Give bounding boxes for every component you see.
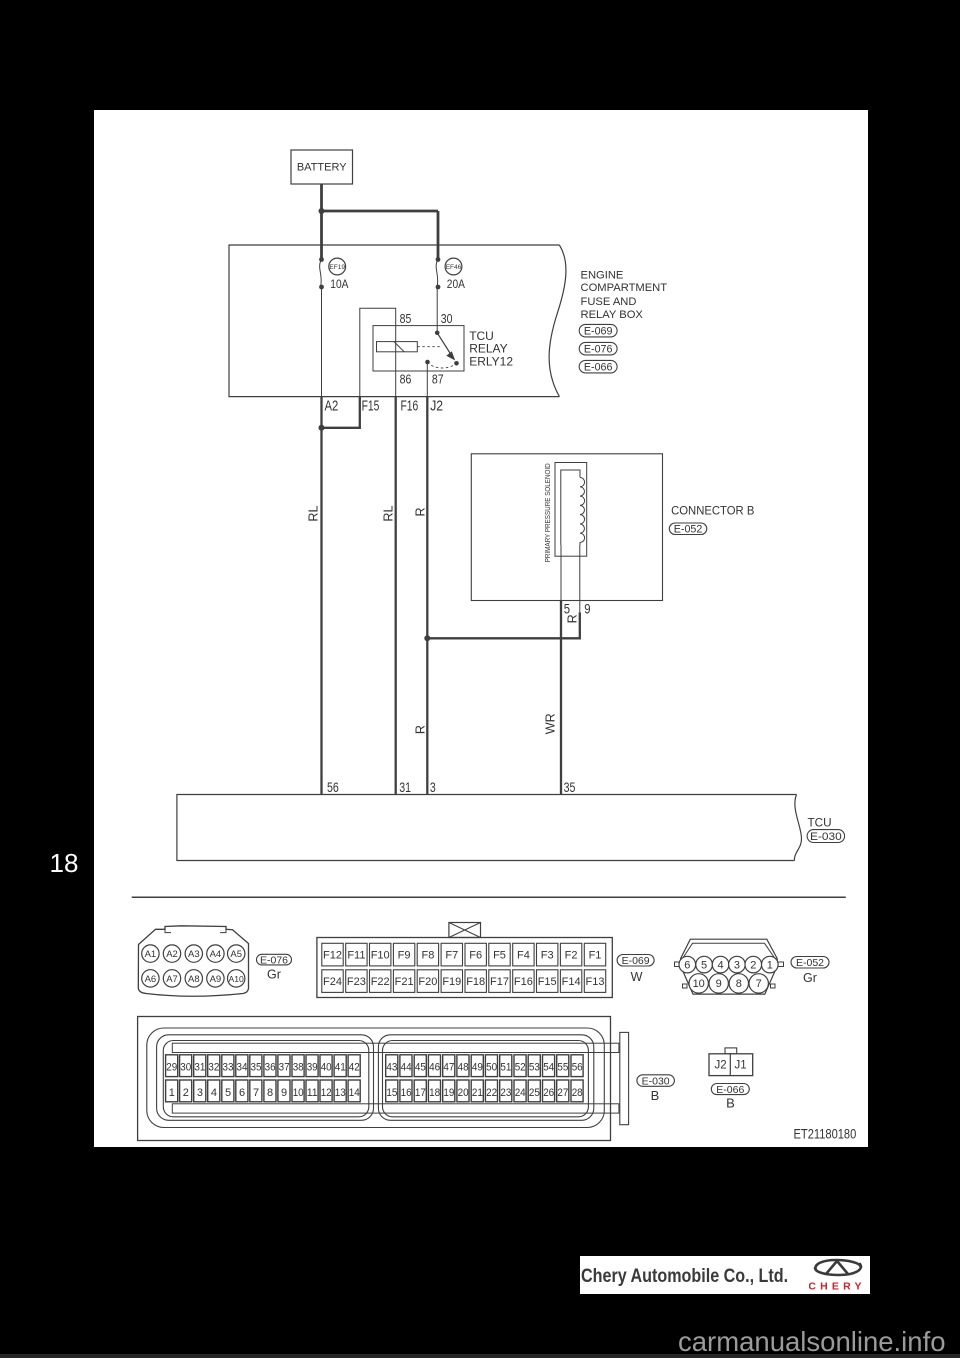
svg-text:29: 29 [166,1062,177,1074]
svg-text:E-030: E-030 [642,1075,670,1087]
svg-text:56: 56 [327,780,339,795]
svg-text:J2: J2 [430,398,443,414]
svg-text:39: 39 [307,1062,318,1074]
svg-text:E-066: E-066 [584,362,613,374]
svg-text:A9: A9 [210,974,222,985]
svg-text:54: 54 [543,1062,554,1074]
svg-text:9: 9 [716,978,722,990]
svg-text:E-052: E-052 [674,524,703,536]
svg-text:4: 4 [211,1087,217,1099]
svg-text:31: 31 [194,1062,205,1074]
svg-text:25: 25 [529,1087,540,1099]
svg-text:F13: F13 [586,976,605,988]
svg-text:28: 28 [572,1087,583,1099]
svg-text:50: 50 [486,1062,497,1074]
svg-text:F1: F1 [589,950,602,962]
svg-text:EF46: EF46 [446,264,462,271]
svg-text:FUSE AND: FUSE AND [581,296,637,308]
svg-text:55: 55 [557,1062,568,1074]
svg-text:45: 45 [415,1062,426,1074]
svg-text:F9: F9 [398,950,411,962]
svg-text:5: 5 [225,1087,231,1099]
svg-text:E-069: E-069 [584,326,613,338]
svg-text:F5: F5 [493,950,506,962]
svg-text:E-076: E-076 [260,954,288,966]
svg-text:R: R [413,507,427,516]
svg-text:Gr: Gr [803,971,817,985]
svg-text:6: 6 [684,959,690,971]
svg-text:34: 34 [237,1062,248,1074]
svg-text:F18: F18 [466,976,485,988]
svg-text:86: 86 [400,371,412,386]
svg-text:9: 9 [584,601,590,616]
svg-text:F15: F15 [362,398,380,414]
svg-text:46: 46 [429,1062,440,1074]
svg-text:13: 13 [335,1087,346,1099]
svg-text:Gr: Gr [267,968,281,982]
svg-text:F20: F20 [418,976,437,988]
svg-text:A5: A5 [230,949,242,960]
svg-text:B: B [651,1088,660,1103]
svg-text:51: 51 [500,1062,511,1074]
svg-text:F21: F21 [395,976,414,988]
svg-text:35: 35 [564,780,576,795]
svg-text:15: 15 [386,1087,397,1099]
svg-text:E-052: E-052 [796,957,824,969]
svg-text:41: 41 [335,1062,346,1074]
svg-text:F12: F12 [323,950,342,962]
svg-text:31: 31 [399,780,411,795]
svg-text:J1: J1 [735,1059,747,1071]
svg-text:F16: F16 [401,398,419,414]
svg-text:3: 3 [430,780,436,795]
svg-text:4: 4 [718,959,724,971]
svg-text:23: 23 [500,1087,511,1099]
svg-text:48: 48 [458,1062,469,1074]
svg-text:3: 3 [197,1087,203,1099]
svg-text:18: 18 [429,1087,440,1099]
svg-text:E-066: E-066 [716,1084,744,1096]
svg-text:42: 42 [349,1062,360,1074]
svg-text:F23: F23 [347,976,366,988]
svg-text:PRIMARY PRESSURE SOLENOID: PRIMARY PRESSURE SOLENOID [543,463,552,562]
svg-text:F3: F3 [541,950,554,962]
svg-text:17: 17 [415,1087,426,1099]
svg-text:87: 87 [432,371,444,386]
svg-text:35: 35 [251,1062,262,1074]
svg-text:ENGINE: ENGINE [581,269,624,281]
svg-text:F4: F4 [517,950,530,962]
svg-text:CHERY: CHERY [809,1281,866,1293]
svg-text:BATTERY: BATTERY [297,161,347,173]
svg-text:F11: F11 [347,950,365,962]
svg-text:RL: RL [382,505,396,521]
svg-text:37: 37 [279,1062,290,1074]
svg-text:11: 11 [307,1087,318,1099]
svg-text:44: 44 [401,1062,412,1074]
svg-text:F2: F2 [565,950,578,962]
svg-text:A3: A3 [188,949,200,960]
svg-text:A4: A4 [210,949,222,960]
svg-text:21: 21 [472,1087,483,1099]
svg-text:20: 20 [458,1087,469,1099]
svg-text:RELAY BOX: RELAY BOX [581,309,644,321]
svg-text:F8: F8 [421,950,434,962]
svg-text:F7: F7 [445,950,458,962]
svg-text:F17: F17 [490,976,509,988]
svg-text:A7: A7 [166,974,178,985]
svg-text:10: 10 [293,1087,304,1099]
svg-text:COMPARTMENT: COMPARTMENT [581,282,668,294]
svg-text:8: 8 [267,1087,273,1099]
svg-text:E-069: E-069 [622,955,650,967]
svg-text:20A: 20A [447,277,466,291]
svg-text:14: 14 [349,1087,360,1099]
svg-text:R: R [566,614,580,623]
svg-text:A2: A2 [325,398,339,414]
svg-text:A2: A2 [166,949,178,960]
svg-text:3: 3 [734,959,740,971]
svg-text:30: 30 [441,311,453,326]
svg-text:52: 52 [515,1062,526,1074]
svg-text:F14: F14 [562,976,581,988]
svg-text:38: 38 [293,1062,304,1074]
svg-text:2: 2 [750,959,756,971]
svg-text:EF19: EF19 [329,264,345,271]
svg-text:43: 43 [386,1062,397,1074]
svg-text:30: 30 [180,1062,191,1074]
svg-text:56: 56 [572,1062,583,1074]
svg-text:ET21180180: ET21180180 [794,1126,857,1141]
svg-text:A8: A8 [188,974,200,985]
svg-text:RL: RL [307,505,321,521]
svg-text:WR: WR [544,713,558,734]
svg-text:47: 47 [443,1062,454,1074]
svg-text:ERLY12: ERLY12 [469,354,513,368]
svg-text:12: 12 [321,1087,332,1099]
svg-text:32: 32 [208,1062,219,1074]
svg-text:36: 36 [265,1062,276,1074]
svg-text:33: 33 [223,1062,234,1074]
svg-text:A1: A1 [145,949,157,960]
svg-text:10A: 10A [330,277,349,291]
svg-text:5: 5 [701,959,707,971]
svg-text:40: 40 [321,1062,332,1074]
svg-text:1: 1 [767,959,773,971]
svg-text:A10: A10 [229,974,245,984]
svg-text:5: 5 [564,601,570,616]
svg-text:F6: F6 [469,950,482,962]
svg-text:TCU: TCU [808,817,832,830]
svg-text:R: R [413,725,427,734]
svg-text:24: 24 [515,1087,526,1099]
svg-text:F22: F22 [371,976,390,988]
svg-text:1: 1 [169,1087,175,1099]
svg-text:A6: A6 [145,974,157,985]
svg-text:10: 10 [693,978,705,990]
svg-text:J2: J2 [715,1059,727,1071]
svg-text:16: 16 [401,1087,412,1099]
svg-text:26: 26 [543,1087,554,1099]
svg-text:7: 7 [253,1087,259,1099]
svg-text:W: W [631,970,643,984]
svg-text:19: 19 [443,1087,454,1099]
svg-text:6: 6 [239,1087,245,1099]
svg-text:9: 9 [281,1087,287,1099]
svg-text:85: 85 [400,311,412,326]
svg-text:22: 22 [486,1087,497,1099]
svg-text:53: 53 [529,1062,540,1074]
svg-text:CONNECTOR B: CONNECTOR B [671,504,754,518]
svg-text:F15: F15 [538,976,557,988]
svg-text:F19: F19 [442,976,461,988]
svg-text:B: B [726,1096,735,1111]
svg-text:7: 7 [756,978,762,990]
svg-text:27: 27 [557,1087,568,1099]
svg-text:F10: F10 [371,950,390,962]
svg-text:8: 8 [736,978,742,990]
svg-text:2: 2 [183,1087,189,1099]
svg-text:49: 49 [472,1062,483,1074]
svg-text:F16: F16 [514,976,533,988]
svg-text:E-030: E-030 [810,831,842,843]
svg-text:F24: F24 [323,976,342,988]
svg-text:E-076: E-076 [584,344,613,356]
